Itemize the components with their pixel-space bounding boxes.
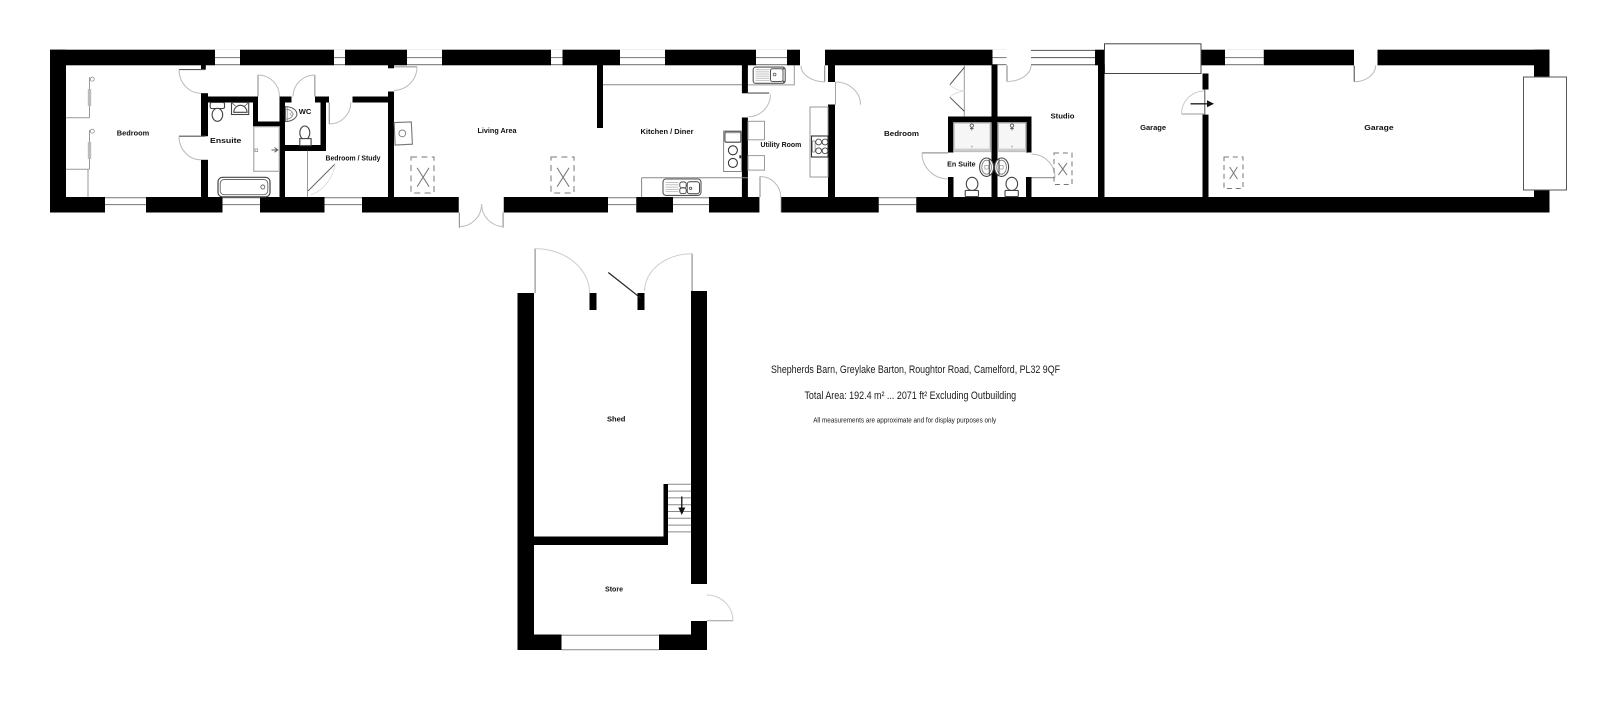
svg-text:All measurements are approxima: All measurements are approximate and for… [813, 416, 996, 425]
svg-text:Shepherds Barn, Greylake Barto: Shepherds Barn, Greylake Barton, Roughto… [771, 364, 1060, 376]
svg-text:Bedroom / Study: Bedroom / Study [326, 153, 382, 162]
svg-text:Shed: Shed [607, 415, 626, 424]
svg-text:Total Area: 192.4 m² ... 2071: Total Area: 192.4 m² ... 2071 ft² Exclud… [804, 390, 1016, 402]
svg-text:Garage: Garage [1364, 123, 1393, 132]
svg-text:Store: Store [605, 585, 623, 594]
svg-text:Bedroom: Bedroom [884, 129, 919, 138]
svg-text:Garage: Garage [1140, 123, 1166, 132]
svg-text:Bedroom: Bedroom [117, 128, 150, 137]
svg-text:WC: WC [299, 107, 312, 116]
svg-text:Ensuite: Ensuite [210, 136, 241, 145]
svg-text:Living Area: Living Area [478, 126, 518, 135]
svg-text:Kitchen / Diner: Kitchen / Diner [641, 127, 694, 136]
svg-text:Utility Room: Utility Room [761, 140, 802, 149]
svg-text:Studio: Studio [1051, 112, 1075, 121]
svg-text:En Suite: En Suite [947, 159, 976, 168]
